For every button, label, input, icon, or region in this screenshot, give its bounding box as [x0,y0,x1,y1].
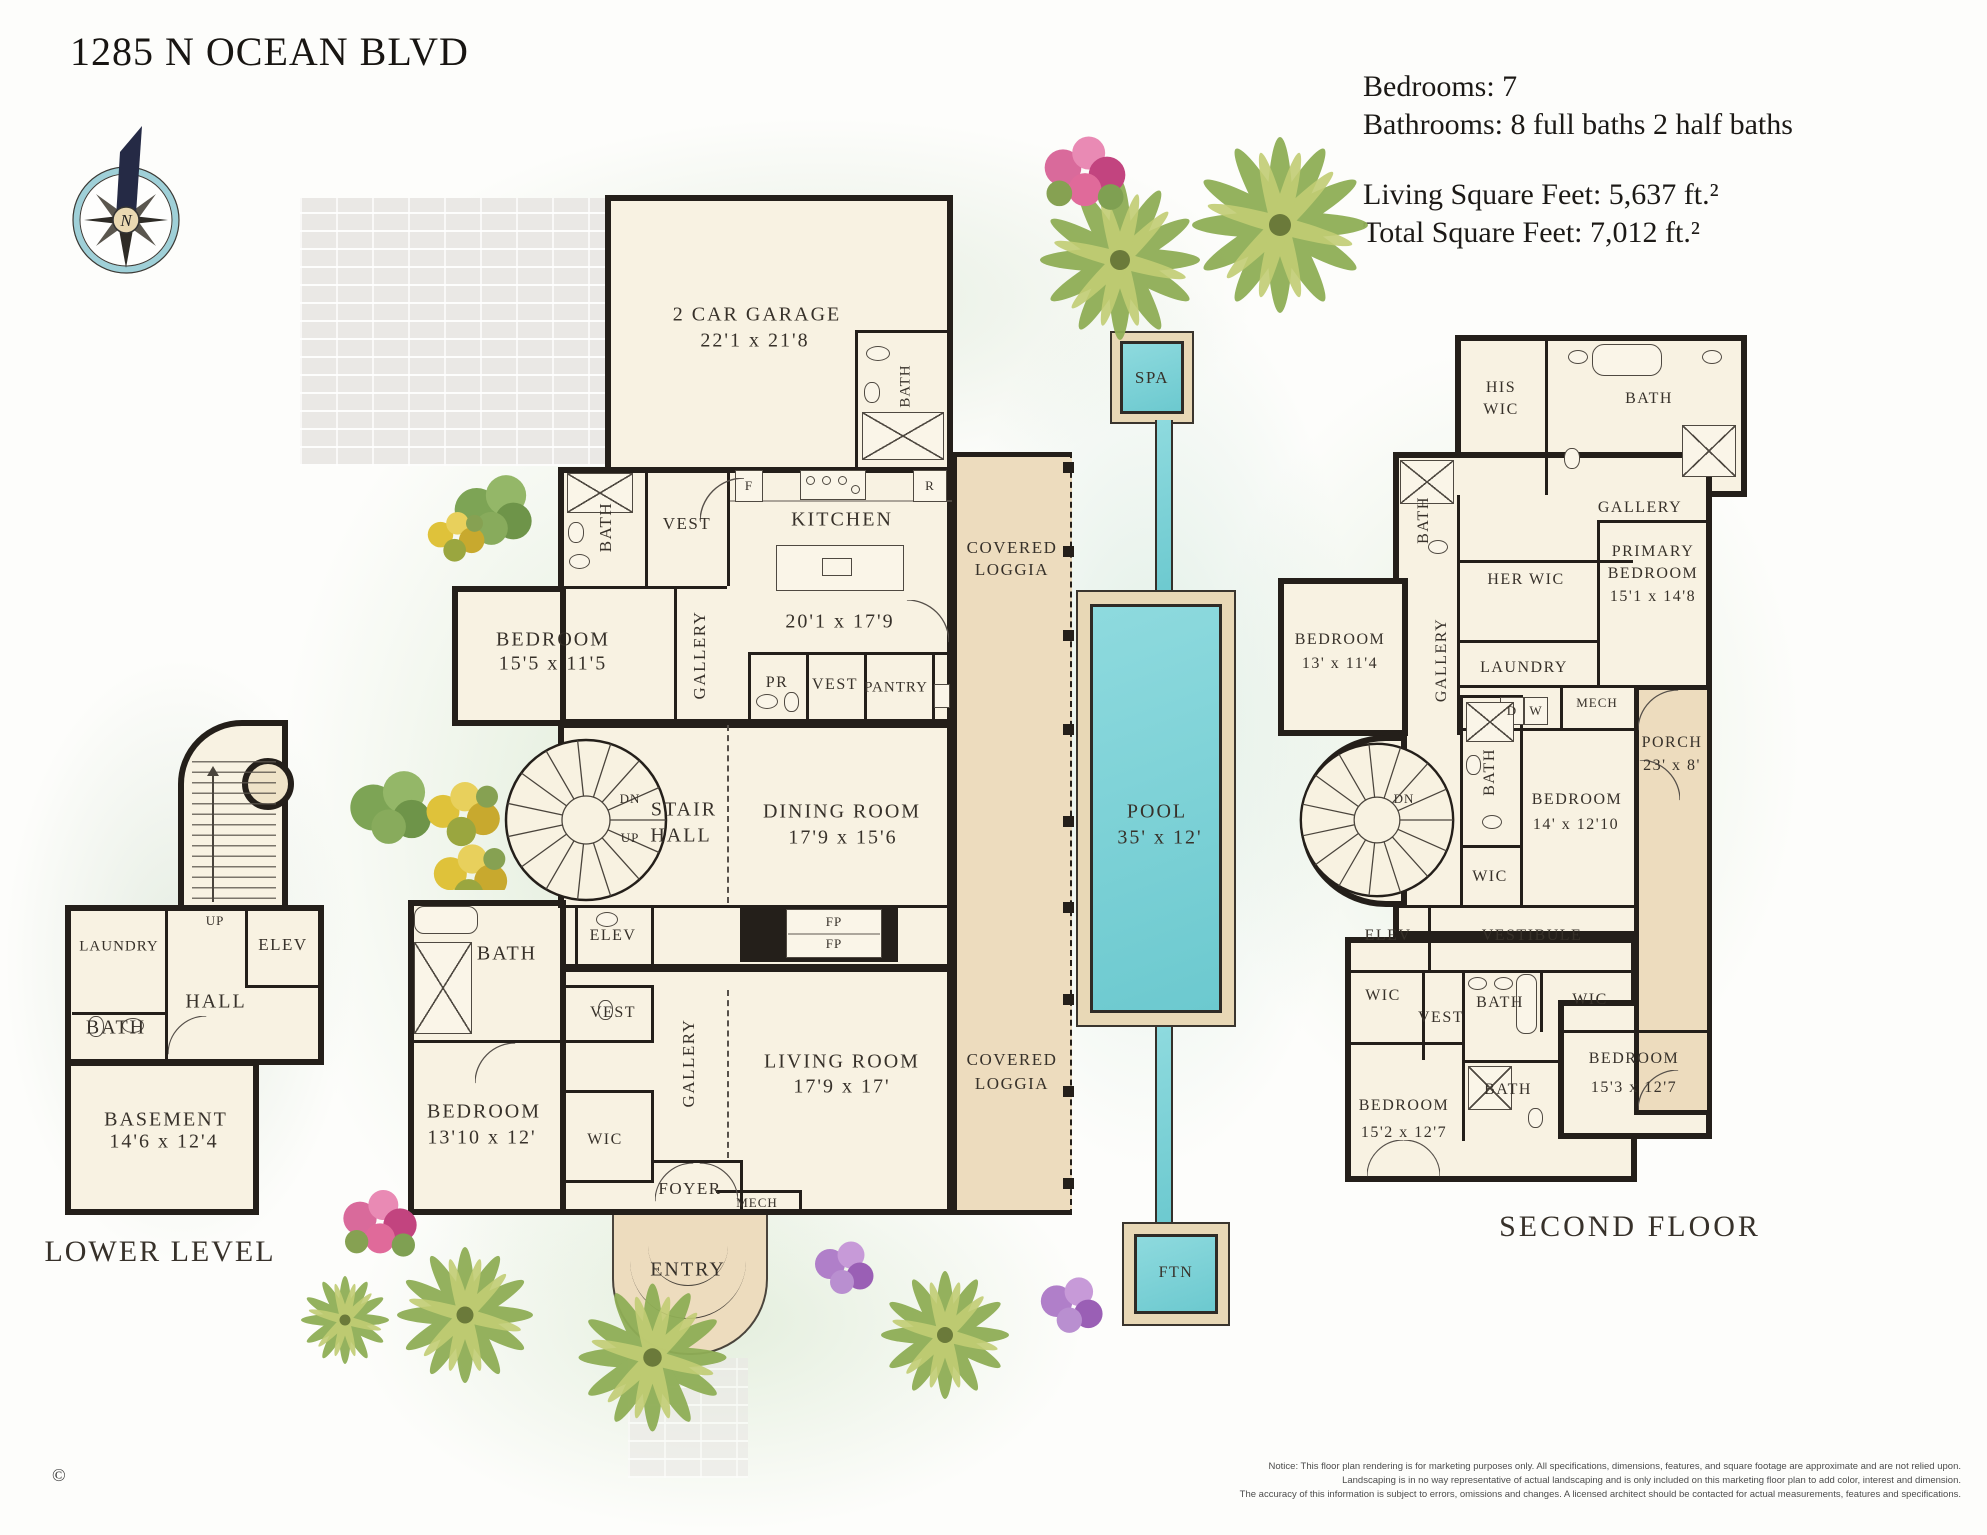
sink-icon [1494,977,1513,990]
lower-level-title: LOWER LEVEL [44,1235,275,1269]
pool-dims: 35' x 12' [1117,827,1202,850]
stair-up-label: UP [206,913,225,929]
living-label: LIVING ROOM [764,1051,920,1074]
shower-icon [862,412,944,460]
palm-tree-icon [380,1230,550,1400]
stair-arrow [212,772,214,902]
bedroom-sw-dims: 13'10 x 12' [427,1127,536,1150]
palm-tree-icon [865,1255,1025,1415]
flower-cluster-icon [1030,120,1140,230]
kitchen-label: KITCHEN [791,509,893,532]
pool-label: POOL [1127,801,1187,824]
vestibule-label: VESTIBULE [1482,927,1583,945]
wic-label: WIC [587,1131,623,1149]
garage-bath-label: BATH [898,364,915,407]
basement-label: BASEMENT [104,1109,228,1132]
bathtub-icon [1592,344,1662,376]
stair-dn-label: DN [1394,791,1415,807]
notice-line-2: Landscaping is in no way representative … [981,1474,1961,1488]
her-wic-label: HER WIC [1487,571,1564,589]
compass-rose-icon: N [56,118,196,293]
bath-label: BATH [86,1017,146,1040]
bedroom-se-dims: 15'3 x 12'7 [1591,1079,1677,1097]
stair-dn-label: DN [620,791,641,807]
palm-tree-icon [560,1265,745,1450]
kitchen-dims: 20'1 x 17'9 [785,611,894,634]
mech-label: MECH [736,1195,778,1211]
toilet-icon [1564,448,1580,469]
elevator-label: ELEV [1365,927,1412,945]
sink-icon [596,912,618,927]
his-wic-label-2: WIC [1483,401,1519,419]
sink-icon [1482,815,1502,829]
second-floor-title: SECOND FLOOR [1499,1210,1761,1244]
island-sink-icon [822,558,852,576]
bedroom-ne-dims: 15'5 x 11'5 [499,653,607,676]
fountain-label: FTN [1159,1264,1194,1282]
palm-tree-icon [290,1265,400,1375]
bath-label: BATH [1415,496,1433,544]
hall-label: HALL [185,991,246,1014]
bathtub-icon [414,906,478,934]
flower-cluster-icon [1025,1260,1120,1355]
notice-line-1: Notice: This floor plan rendering is for… [981,1460,1961,1474]
dining-dims: 17'9 x 15'6 [788,827,897,850]
primary-bedroom-label-1: PRIMARY [1612,543,1695,561]
shower-icon [1682,425,1736,477]
stair-up-label: UP [621,830,640,846]
bedroom-mid-label: BEDROOM [1532,791,1623,809]
pantry-label: PANTRY [864,680,928,697]
washer-label: W [1529,703,1542,719]
bath-label: BATH [1481,748,1499,796]
bedroom-sw2-label: BEDROOM [1359,1097,1450,1115]
primary-bedroom-dims: 15'1 x 14'8 [1610,588,1696,606]
bedroom-sw2-dims: 15'2 x 12'7 [1361,1124,1447,1142]
fireplace-label: FP [826,914,842,930]
water-channel [1155,420,1173,596]
covered-loggia-label-1: COVERED [967,1050,1058,1070]
toilet-icon [864,382,880,403]
primary-bath-label: BATH [1625,390,1673,408]
stats-spacer [1363,144,1793,176]
notice-text: Notice: This floor plan rendering is for… [981,1460,1961,1501]
bedroom-nw-label: BEDROOM [1295,631,1386,649]
spiral-staircase [502,736,670,904]
bath-label: BATH [1484,1081,1532,1099]
covered-loggia-label-2: LOGGIA [975,560,1049,580]
porch-label: PORCH [1642,734,1703,752]
stats-block: Bedrooms: 7 Bathrooms: 8 full baths 2 ha… [1363,68,1793,252]
garage-dims: 22'1 x 21'8 [700,330,809,353]
page-title: 1285 N OCEAN BLVD [70,28,469,75]
flower-cluster-icon [410,740,520,890]
gallery-label: GALLERY [1598,499,1682,517]
range-label: R [925,478,935,494]
gallery-label: GALLERY [1433,618,1451,702]
bedroom-nw-dims: 13' x 11'4 [1302,655,1378,673]
stat-bedrooms: Bedrooms: 7 [1363,68,1793,106]
fridge-label: F [745,478,753,494]
stair-hall-label-1: STAIR [651,799,717,822]
dryer-label: D [1507,703,1517,719]
utility-sink-icon [934,684,950,708]
bath-label: BATH [596,502,616,552]
vest-label: VEST [590,1004,636,1022]
sink-icon [1468,977,1487,990]
foyer-label: FOYER [658,1179,721,1199]
toilet-icon [784,692,799,712]
basement-dims: 14'6 x 12'4 [109,1131,218,1154]
bedroom-ne-label: BEDROOM [496,629,610,652]
stair-treads [192,752,276,902]
stat-total-sqft: Total Square Feet: 7,012 ft.² [1363,214,1793,252]
spa-label: SPA [1135,368,1169,388]
stat-living-sqft: Living Square Feet: 5,637 ft.² [1363,176,1793,214]
toilet-icon [1528,1108,1543,1128]
bedroom-se-label: BEDROOM [1589,1050,1680,1068]
powder-room-label: PR [766,674,789,692]
vest-label: VEST [1418,1009,1464,1027]
palm-tree-icon [1170,115,1390,335]
compass-north-label: N [119,211,133,230]
gallery-label: GALLERY [690,611,710,700]
toilet-icon [1466,755,1481,775]
bath-label: BATH [1476,994,1524,1012]
living-dims: 17'9 x 17' [793,1076,890,1099]
stair-hall-label-2: HALL [650,825,711,848]
wic-label: WIC [1572,991,1608,1009]
spiral-staircase [1297,740,1457,900]
toilet-icon [568,522,584,543]
laundry-label: LAUNDRY [79,939,159,956]
sink-icon [569,554,590,569]
covered-loggia-label-2: LOGGIA [975,1074,1049,1094]
vest-label: VEST [812,676,858,694]
bedroom-sw-label: BEDROOM [427,1101,541,1124]
covered-loggia-label-1: COVERED [967,538,1058,558]
sink-icon [1568,350,1588,364]
elevator-label: ELEV [590,927,637,945]
stat-bathrooms: Bathrooms: 8 full baths 2 half baths [1363,106,1793,144]
fireplace-label: FP [826,936,842,952]
vest-label: VEST [663,514,712,534]
sink-icon [1702,350,1722,364]
his-wic-label-1: HIS [1486,379,1516,397]
gallery-label: GALLERY [679,1019,699,1108]
primary-bedroom-label-2: BEDROOM [1608,565,1699,583]
bedroom-mid-dims: 14' x 12'10 [1533,816,1619,834]
garage-label: 2 CAR GARAGE [673,304,841,327]
flower-cluster-icon [415,495,500,580]
bath-label: BATH [477,943,537,966]
dining-label: DINING ROOM [763,801,921,824]
laundry-label: LAUNDRY [1480,659,1568,677]
elevator-label: ELEV [258,935,307,955]
floorplan-page: 1285 N OCEAN BLVD Bedrooms: 7 Bathrooms:… [0,0,1987,1535]
porch-dims: 23' x 8' [1643,757,1701,775]
copyright-mark: © [52,1465,66,1486]
mech-label: MECH [1576,695,1618,711]
sink-icon [756,694,778,709]
wic-label: WIC [1472,868,1508,886]
water-channel [1155,1027,1173,1227]
notice-line-3: The accuracy of this information is subj… [981,1488,1961,1502]
wic-label: WIC [1365,987,1401,1005]
shower-icon [414,942,472,1034]
driveway [300,198,610,466]
sink-icon [866,346,890,361]
